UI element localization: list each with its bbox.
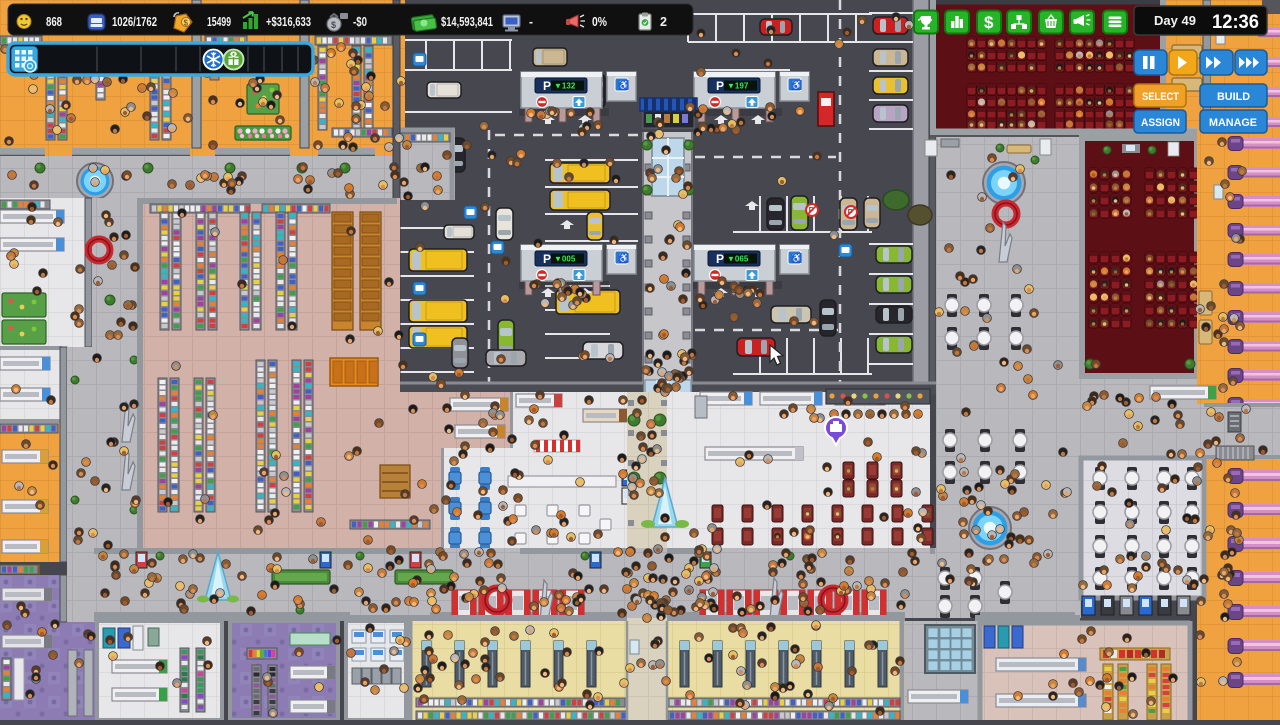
- svg-text:P: P: [716, 79, 724, 93]
- svg-text:12:36: 12:36: [1212, 11, 1259, 33]
- svg-text:ASSIGN: ASSIGN: [1141, 117, 1180, 129]
- svg-text:+$316,633: +$316,633: [266, 15, 311, 29]
- svg-text:♿: ♿: [618, 79, 629, 90]
- svg-text:$14,593,841: $14,593,841: [441, 15, 493, 29]
- svg-text:2: 2: [660, 15, 667, 29]
- svg-text:$: $: [331, 20, 336, 30]
- svg-text:BUILD: BUILD: [1217, 91, 1250, 103]
- svg-text:-$0: -$0: [353, 15, 367, 29]
- svg-text:▼065: ▼065: [727, 255, 749, 264]
- svg-text:0%: 0%: [592, 15, 607, 29]
- svg-text:♿: ♿: [791, 252, 802, 263]
- svg-text:♿: ♿: [618, 252, 629, 263]
- svg-text:SELECT: SELECT: [1142, 91, 1179, 103]
- svg-text:$: $: [184, 19, 189, 28]
- svg-text:P: P: [716, 252, 724, 266]
- svg-text:P: P: [543, 252, 551, 266]
- svg-text:P: P: [543, 79, 551, 93]
- svg-text:-: -: [529, 15, 533, 29]
- svg-text:868: 868: [46, 15, 62, 29]
- svg-text:♿: ♿: [791, 79, 802, 90]
- svg-text:▼005: ▼005: [554, 255, 576, 264]
- svg-text:▼132: ▼132: [554, 82, 576, 91]
- svg-text:Day 49: Day 49: [1154, 13, 1196, 28]
- svg-text:MANAGE: MANAGE: [1209, 117, 1257, 129]
- svg-text:15499: 15499: [207, 15, 231, 29]
- svg-text:▼197: ▼197: [727, 82, 749, 91]
- svg-text:$: $: [984, 13, 994, 32]
- svg-text:1026/1762: 1026/1762: [112, 15, 157, 29]
